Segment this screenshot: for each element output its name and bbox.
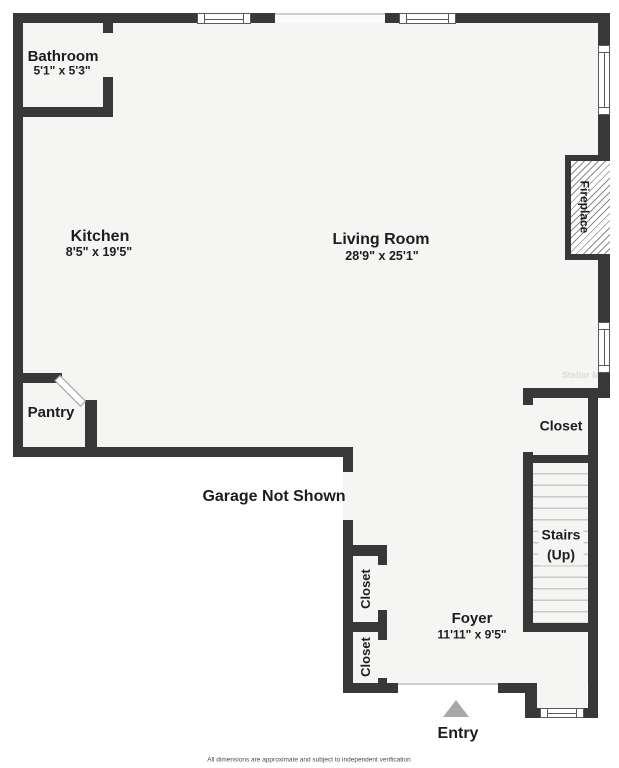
room-dims-living-room: 28'9" x 25'1" xyxy=(345,250,418,264)
stairs-label-note: (Up) xyxy=(542,545,581,565)
window-pane xyxy=(604,52,605,108)
closet-upper-door-opening xyxy=(378,565,387,610)
room-dims-foyer: 11'11" x 9'5" xyxy=(437,628,506,641)
room-label-closet-upper: Closet xyxy=(359,569,373,609)
stairs-label-name: Stairs xyxy=(542,525,581,545)
room-label-pantry: Pantry xyxy=(28,405,75,422)
window-cap xyxy=(197,13,205,24)
fireplace-label: Fireplace xyxy=(577,181,590,234)
top-wall-opening xyxy=(275,13,385,23)
wall-stairs-bottom xyxy=(523,623,598,632)
entry-label: Entry xyxy=(438,725,479,743)
window-cap xyxy=(598,322,610,330)
window-cap xyxy=(598,45,610,53)
room-label-closet-lower: Closet xyxy=(359,637,373,677)
wall-bathroom-bottom xyxy=(13,107,113,117)
stairs-label: Stairs (Up) xyxy=(539,524,584,565)
hall-closet-door-opening xyxy=(523,405,533,452)
wall-kitchen-bottom xyxy=(13,447,353,457)
window-right-lower xyxy=(598,322,610,373)
window-pane xyxy=(547,713,577,714)
closet-lower-door-opening xyxy=(378,640,387,678)
window-right-upper xyxy=(598,45,610,115)
wall-pantry-right xyxy=(85,400,97,457)
room-label-foyer: Foyer xyxy=(452,611,493,628)
disclaimer-text: All dimensions are approximate and subje… xyxy=(207,757,410,764)
room-dims-bathroom: 5'1" x 5'3" xyxy=(33,64,90,77)
window-pane xyxy=(406,19,449,20)
window-top-left xyxy=(197,13,251,24)
floor-area-alcove xyxy=(537,683,587,710)
mls-watermark: Stellar MLS xyxy=(562,370,611,380)
garage-note-label: Garage Not Shown xyxy=(202,488,345,506)
bathroom-door-opening xyxy=(103,33,113,77)
window-pane xyxy=(604,329,605,366)
window-cap xyxy=(399,13,407,24)
window-cap xyxy=(576,708,584,718)
window-cap xyxy=(598,107,610,115)
room-label-kitchen: Kitchen xyxy=(71,228,130,246)
window-cap xyxy=(448,13,456,24)
entry-arrow-icon xyxy=(443,700,469,717)
room-label-hall-closet: Closet xyxy=(540,418,583,433)
wall-left xyxy=(13,13,23,457)
entry-door-opening xyxy=(398,683,498,693)
wall-column-right xyxy=(588,388,598,718)
room-dims-kitchen: 8'5" x 19'5" xyxy=(66,246,132,260)
window-pane xyxy=(204,19,244,20)
wall-closet-stairs-separator xyxy=(533,455,588,463)
room-label-living-room: Living Room xyxy=(333,231,430,249)
window-cap xyxy=(540,708,548,718)
window-top-right xyxy=(399,13,456,24)
floor-plan: Fireplace Bathroom 5'1" x 5'3" Kitchen 8… xyxy=(0,0,619,768)
window-alcove-bottom xyxy=(540,708,584,718)
window-cap xyxy=(243,13,251,24)
